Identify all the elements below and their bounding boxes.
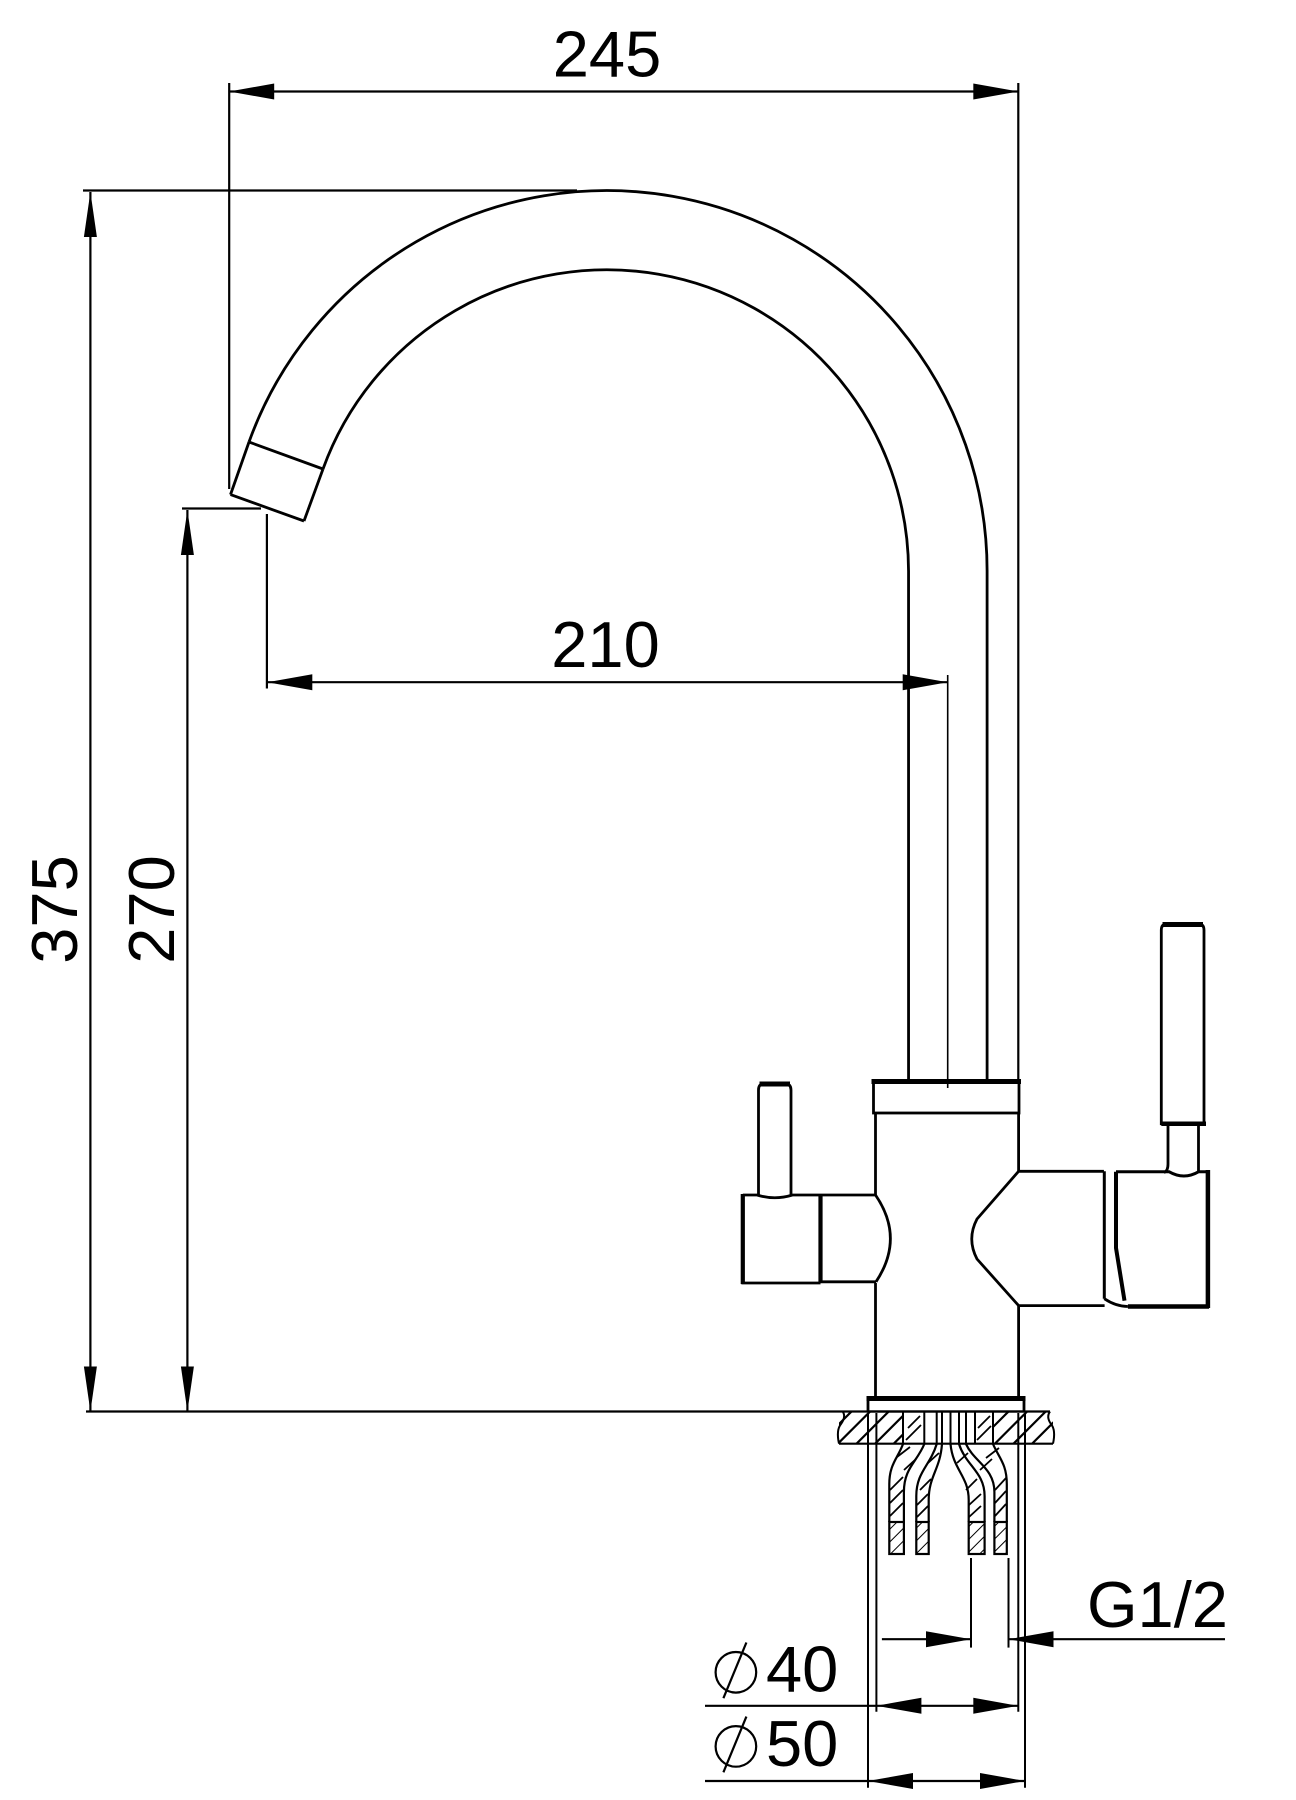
- svg-text:G1/2: G1/2: [1087, 1568, 1228, 1641]
- svg-text:210: 210: [551, 608, 659, 681]
- svg-text:375: 375: [18, 855, 91, 963]
- svg-text:50: 50: [766, 1707, 838, 1780]
- svg-text:245: 245: [553, 17, 661, 90]
- svg-text:270: 270: [115, 855, 188, 963]
- svg-text:40: 40: [766, 1633, 838, 1706]
